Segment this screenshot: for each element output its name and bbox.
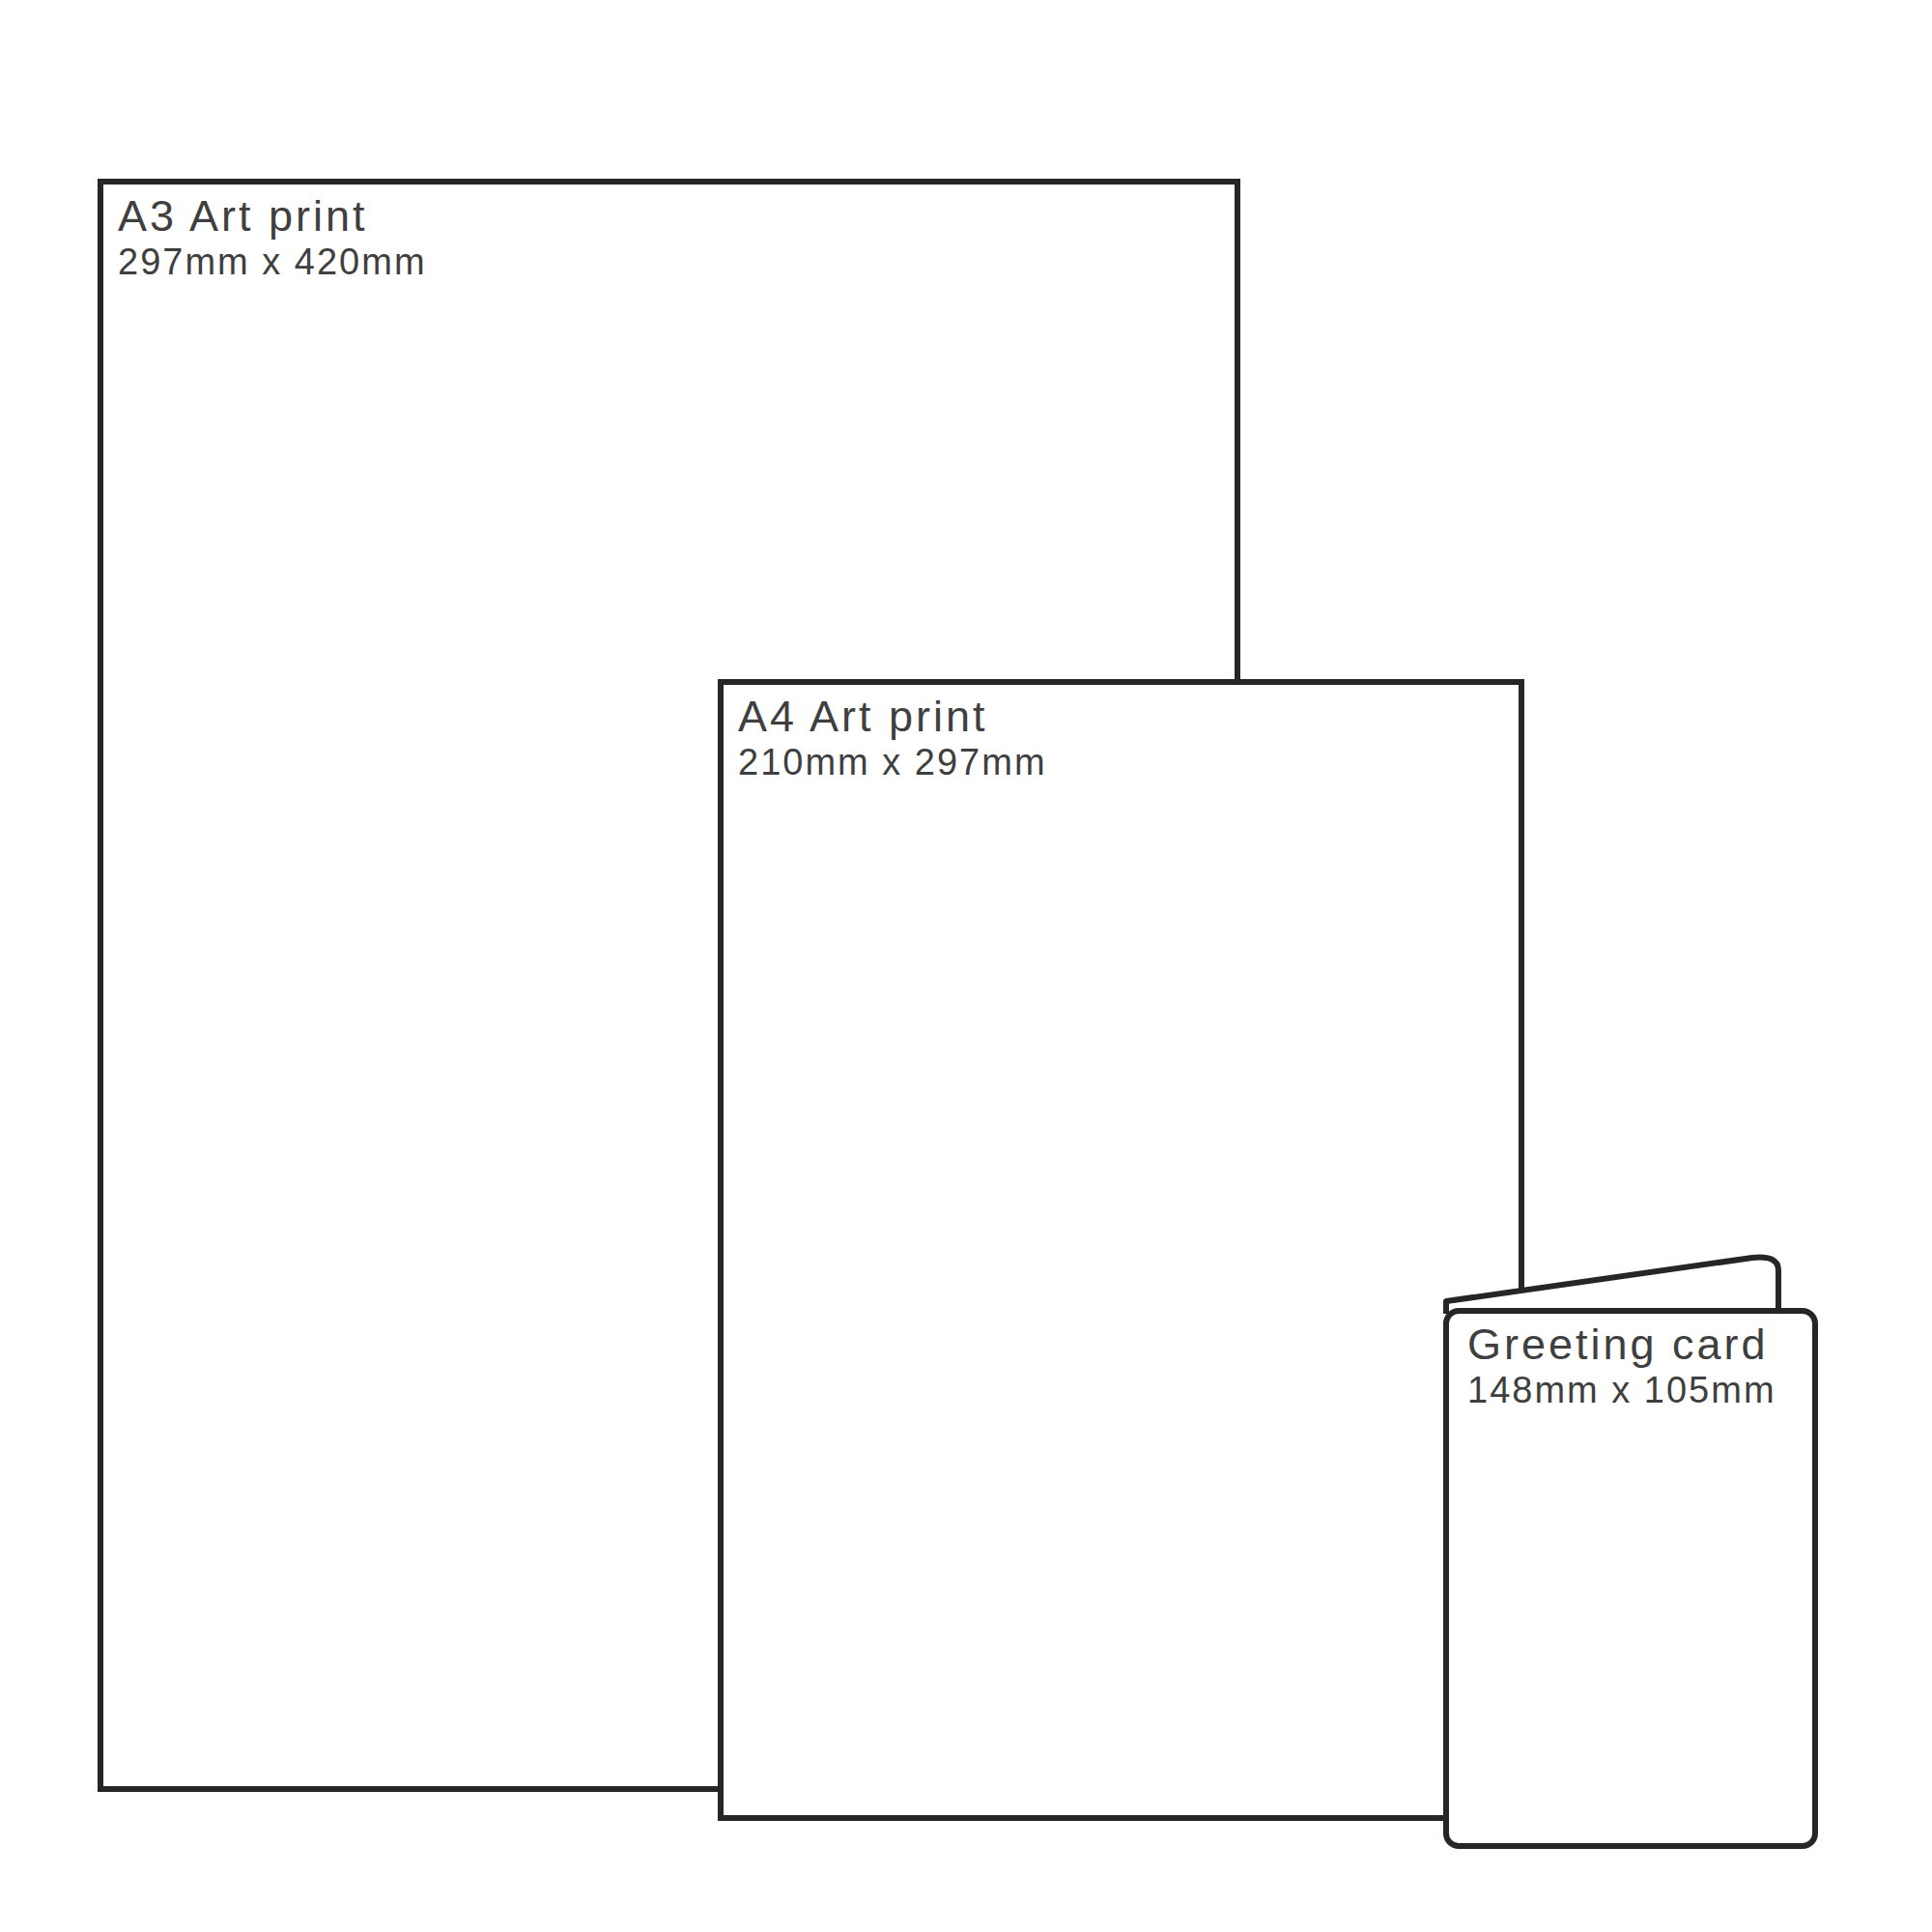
greeting-card-title: Greeting card bbox=[1467, 1321, 1776, 1369]
greeting-card-size: 148mm x 105mm bbox=[1467, 1369, 1776, 1413]
a3-print-title: A3 Art print bbox=[118, 192, 427, 241]
a4-print-size: 210mm x 297mm bbox=[738, 741, 1047, 785]
greeting-card-outline: Greeting card 148mm x 105mm bbox=[1443, 1308, 1818, 1849]
a3-print-size: 297mm x 420mm bbox=[118, 241, 427, 285]
size-comparison-diagram: A3 Art print 297mm x 420mm A4 Art print … bbox=[0, 0, 1932, 1932]
a4-print-title: A4 Art print bbox=[738, 693, 1047, 741]
a4-print-outline: A4 Art print 210mm x 297mm bbox=[718, 679, 1524, 1821]
a3-print-label: A3 Art print 297mm x 420mm bbox=[118, 192, 427, 285]
greeting-card-label: Greeting card 148mm x 105mm bbox=[1467, 1321, 1776, 1413]
a4-print-label: A4 Art print 210mm x 297mm bbox=[738, 693, 1047, 785]
